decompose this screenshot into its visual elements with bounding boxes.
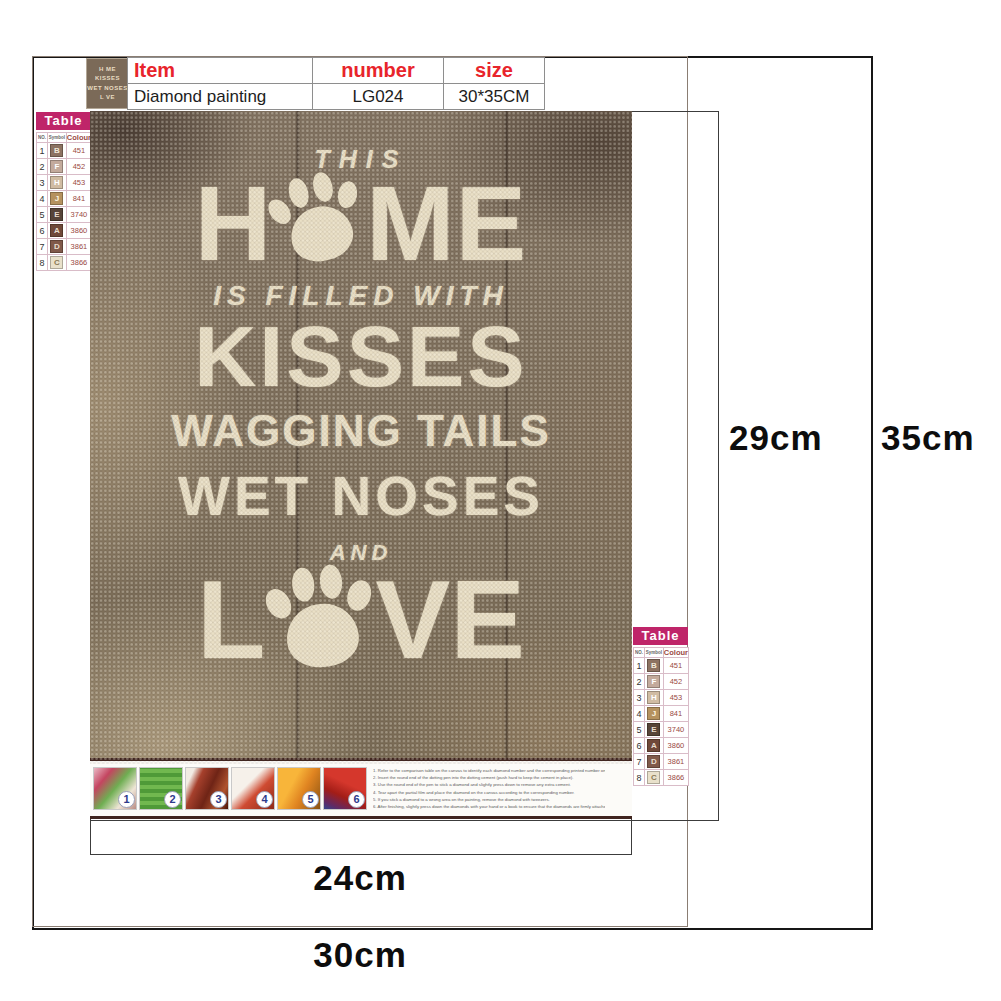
row-no: 1 bbox=[37, 143, 48, 159]
legend-row: 6A3860 bbox=[634, 738, 689, 754]
canvas-text: THIS H M E IS FILLED WITH KISSES WAGGING bbox=[90, 111, 632, 764]
legend-row: 1B451 bbox=[634, 658, 689, 674]
colour-code: 3860 bbox=[663, 738, 688, 754]
paw-toe bbox=[343, 577, 374, 614]
symbol-cell: F bbox=[48, 159, 67, 175]
step-number-badge: 4 bbox=[256, 791, 273, 808]
symbol-swatch: E bbox=[647, 723, 660, 736]
legend-row: 3H453 bbox=[37, 175, 92, 191]
instruction-line: 3. Use the round end of the pen to stick… bbox=[373, 781, 605, 788]
step-photo: 5 bbox=[277, 767, 321, 810]
row-no: 3 bbox=[37, 175, 48, 191]
text-kisses: KISSES bbox=[194, 316, 527, 398]
colour-code: 451 bbox=[663, 658, 688, 674]
colour-code: 3861 bbox=[66, 239, 91, 255]
instruction-line: 5. If you stick a diamond to a wrong are… bbox=[373, 796, 605, 803]
symbol-cell: E bbox=[48, 207, 67, 223]
spec-header-number: number bbox=[313, 58, 444, 84]
row-no: 7 bbox=[37, 239, 48, 255]
paw-toe bbox=[318, 563, 344, 599]
symbol-swatch: D bbox=[647, 755, 660, 768]
wood-plank-seam bbox=[295, 111, 300, 764]
spec-value-size: 30*35CM bbox=[444, 84, 545, 110]
symbol-swatch: A bbox=[50, 224, 63, 237]
legend-row: 5E3740 bbox=[37, 207, 92, 223]
instruction-text: 1. Refer to the comparison table on the … bbox=[373, 767, 605, 809]
paw-pad bbox=[285, 200, 358, 267]
product-thumbnail: H ME KISSES WET NOSES L VE bbox=[86, 58, 129, 109]
step-photo: 6 bbox=[323, 767, 367, 810]
colour-code: 3740 bbox=[66, 207, 91, 223]
step-number-badge: 3 bbox=[210, 791, 227, 808]
text-wagging-tails: WAGGING TAILS bbox=[171, 406, 551, 456]
paw-pad bbox=[283, 601, 362, 671]
letter-h: H bbox=[195, 178, 273, 268]
legend-row: 3H453 bbox=[634, 690, 689, 706]
row-no: 5 bbox=[37, 207, 48, 223]
symbol-swatch: J bbox=[50, 192, 63, 205]
legend-row: 8C3866 bbox=[37, 255, 92, 271]
symbol-cell: C bbox=[48, 255, 67, 271]
paw-toe bbox=[310, 170, 336, 203]
instruction-strip: 1 2 3 4 5 6 1. Refer to the comparison t… bbox=[90, 758, 632, 819]
step-number-badge: 6 bbox=[348, 791, 365, 808]
canvas-width-label: 30cm bbox=[240, 935, 480, 975]
instruction-line: 1. Refer to the comparison table on the … bbox=[373, 767, 605, 774]
legend-col-symbol: Symbol bbox=[48, 133, 67, 143]
text-wet-noses: WET NOSES bbox=[178, 464, 544, 528]
symbol-swatch: B bbox=[647, 659, 660, 672]
symbol-cell: E bbox=[645, 722, 664, 738]
step-photo: 4 bbox=[231, 767, 275, 810]
canvas-artwork: THIS H M E IS FILLED WITH KISSES WAGGING bbox=[90, 111, 632, 764]
symbol-swatch: B bbox=[50, 144, 63, 157]
legend-table: NO. Symbol Colour 1B451 2F452 3H453 4J84… bbox=[36, 132, 92, 271]
symbol-swatch: C bbox=[647, 771, 660, 784]
legend-row: 7D3861 bbox=[634, 754, 689, 770]
color-legend-left: Table NO. Symbol Colour 1B451 2F452 3H45… bbox=[36, 112, 92, 271]
legend-row: 2F452 bbox=[634, 674, 689, 690]
symbol-cell: J bbox=[48, 191, 67, 207]
spec-value-number: LG024 bbox=[313, 84, 444, 110]
symbol-swatch: E bbox=[50, 208, 63, 221]
legend-col-colour: Colour bbox=[663, 648, 688, 658]
letter-m: M bbox=[366, 178, 455, 268]
colour-code: 3866 bbox=[66, 255, 91, 271]
legend-row: 2F452 bbox=[37, 159, 92, 175]
legend-title: Table bbox=[633, 627, 688, 645]
colour-code: 841 bbox=[66, 191, 91, 207]
legend-col-symbol: Symbol bbox=[645, 648, 664, 658]
step-number-badge: 2 bbox=[164, 791, 181, 808]
symbol-swatch: A bbox=[647, 739, 660, 752]
row-no: 8 bbox=[37, 255, 48, 271]
symbol-swatch: F bbox=[647, 675, 660, 688]
symbol-swatch: F bbox=[50, 160, 63, 173]
paw-toe bbox=[260, 584, 295, 622]
letter-v: V bbox=[376, 572, 451, 667]
legend-row: 7D3861 bbox=[37, 239, 92, 255]
spec-header-size: size bbox=[444, 58, 545, 84]
colour-code: 3866 bbox=[663, 770, 688, 786]
step-photo: 2 bbox=[139, 767, 183, 810]
text-is-filled-with: IS FILLED WITH bbox=[213, 280, 509, 312]
row-no: 1 bbox=[634, 658, 645, 674]
colour-code: 451 bbox=[66, 143, 91, 159]
step-number-badge: 1 bbox=[118, 791, 135, 808]
row-no: 5 bbox=[634, 722, 645, 738]
symbol-swatch: J bbox=[647, 707, 660, 720]
step-photo: 1 bbox=[93, 767, 137, 810]
design-width-label: 24cm bbox=[240, 858, 480, 898]
row-no: 4 bbox=[634, 706, 645, 722]
step-number-badge: 5 bbox=[302, 791, 319, 808]
thumb-line: KISSES bbox=[95, 74, 120, 83]
text-this: THIS bbox=[315, 145, 408, 174]
colour-code: 841 bbox=[663, 706, 688, 722]
wood-plank-seam bbox=[504, 111, 509, 764]
canvas-height-label: 35cm bbox=[881, 418, 975, 458]
symbol-cell: J bbox=[645, 706, 664, 722]
step-photo: 3 bbox=[185, 767, 229, 810]
instruction-line: 2. Insert the round end of the dotting p… bbox=[373, 774, 605, 781]
thumb-line: H ME bbox=[99, 65, 116, 74]
row-no: 2 bbox=[37, 159, 48, 175]
diamond-painting-canvas: THIS H M E IS FILLED WITH KISSES WAGGING bbox=[90, 111, 632, 819]
design-height-label: 29cm bbox=[729, 418, 823, 458]
text-and: AND bbox=[330, 540, 393, 566]
symbol-cell: F bbox=[645, 674, 664, 690]
paw-toe bbox=[336, 180, 360, 210]
text-home: H M E bbox=[195, 178, 528, 268]
colour-code: 3861 bbox=[663, 754, 688, 770]
spec-value-item: Diamond painting bbox=[128, 84, 313, 110]
paw-toe bbox=[290, 566, 316, 602]
paw-toe bbox=[265, 195, 297, 228]
colour-code: 452 bbox=[66, 159, 91, 175]
row-no: 6 bbox=[37, 223, 48, 239]
symbol-swatch: D bbox=[50, 240, 63, 253]
symbol-swatch: H bbox=[50, 176, 63, 189]
thumb-line: WET NOSES bbox=[87, 84, 128, 93]
row-no: 4 bbox=[37, 191, 48, 207]
letter-e: E bbox=[456, 178, 528, 268]
row-no: 8 bbox=[634, 770, 645, 786]
symbol-cell: H bbox=[48, 175, 67, 191]
colour-code: 3740 bbox=[663, 722, 688, 738]
legend-col-no: NO. bbox=[37, 133, 48, 143]
legend-row: 4J841 bbox=[37, 191, 92, 207]
spec-table: Item number size Diamond painting LG024 … bbox=[127, 57, 545, 110]
colour-code: 453 bbox=[663, 690, 688, 706]
legend-row: 6A3860 bbox=[37, 223, 92, 239]
instruction-line: 6. After finishing, slightly press down … bbox=[373, 803, 605, 810]
symbol-cell: C bbox=[645, 770, 664, 786]
instruction-line: 4. Tear apart the partial film and place… bbox=[373, 789, 605, 796]
letter-l: L bbox=[197, 572, 265, 667]
symbol-cell: A bbox=[48, 223, 67, 239]
legend-col-no: NO. bbox=[634, 648, 645, 658]
row-no: 6 bbox=[634, 738, 645, 754]
symbol-swatch: C bbox=[50, 256, 63, 269]
symbol-swatch: H bbox=[647, 691, 660, 704]
text-love: L V E bbox=[197, 568, 525, 672]
thumb-line: L VE bbox=[100, 93, 115, 102]
legend-col-colour: Colour bbox=[66, 133, 91, 143]
legend-row: 4J841 bbox=[634, 706, 689, 722]
paw-print-icon bbox=[267, 165, 370, 273]
step-photos: 1 2 3 4 5 6 bbox=[93, 767, 367, 810]
letter-e: E bbox=[450, 572, 525, 667]
symbol-cell: B bbox=[645, 658, 664, 674]
legend-row: 1B451 bbox=[37, 143, 92, 159]
row-no: 3 bbox=[634, 690, 645, 706]
row-no: 7 bbox=[634, 754, 645, 770]
row-no: 2 bbox=[634, 674, 645, 690]
product-infographic: 29cm 35cm 24cm 30cm H ME KISSES WET NOSE… bbox=[0, 0, 1001, 1001]
spec-header-item: Item bbox=[128, 58, 313, 84]
legend-row: 8C3866 bbox=[634, 770, 689, 786]
symbol-cell: D bbox=[48, 239, 67, 255]
symbol-cell: B bbox=[48, 143, 67, 159]
colour-code: 453 bbox=[66, 175, 91, 191]
symbol-cell: H bbox=[645, 690, 664, 706]
legend-row: 5E3740 bbox=[634, 722, 689, 738]
color-legend-right: Table NO. Symbol Colour 1B451 2F452 3H45… bbox=[633, 627, 689, 786]
paw-toe bbox=[286, 176, 312, 209]
colour-code: 452 bbox=[663, 674, 688, 690]
legend-title: Table bbox=[36, 112, 91, 130]
legend-table: NO. Symbol Colour 1B451 2F452 3H453 4J84… bbox=[633, 647, 689, 786]
symbol-cell: A bbox=[645, 738, 664, 754]
symbol-cell: D bbox=[645, 754, 664, 770]
colour-code: 3860 bbox=[66, 223, 91, 239]
paw-print-icon bbox=[266, 561, 374, 675]
